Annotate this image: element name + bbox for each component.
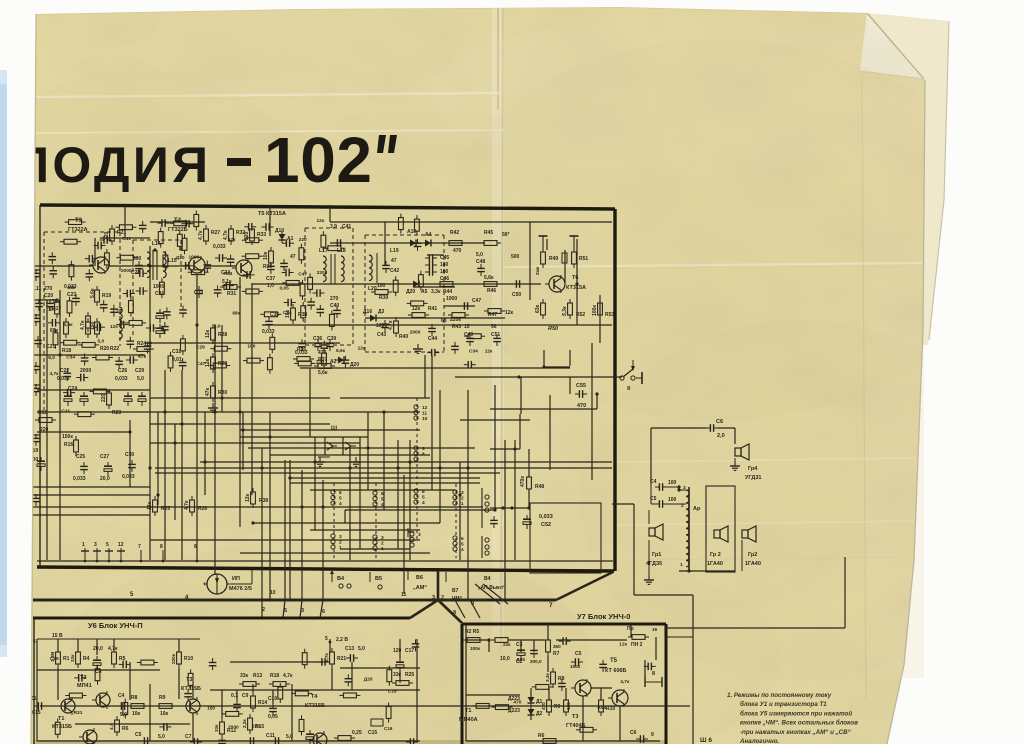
svg-text:С34: С34 — [66, 355, 75, 361]
svg-text:68к: 68к — [68, 285, 76, 291]
svg-text:R8: R8 — [558, 676, 565, 682]
svg-text:Т5 КТ315А: Т5 КТ315А — [258, 211, 286, 217]
svg-text:М476 2/5: М476 2/5 — [229, 586, 252, 592]
svg-text:3: 3 — [94, 542, 97, 548]
svg-text:R22: R22 — [110, 346, 119, 352]
svg-text:4,7к: 4,7к — [620, 679, 630, 685]
svg-text:100к: 100к — [592, 305, 598, 316]
svg-text:1ГА40: 1ГА40 — [745, 561, 761, 567]
svg-text:С36: С36 — [313, 336, 322, 342]
svg-text:Д223: Д223 — [508, 708, 520, 714]
svg-text:390: 390 — [133, 256, 142, 262]
svg-text:R4: R4 — [83, 656, 90, 662]
svg-text:Ш: Ш — [331, 426, 337, 432]
svg-text:63к: 63к — [535, 304, 541, 313]
svg-text:R23: R23 — [112, 410, 121, 416]
svg-text:R30: R30 — [218, 390, 227, 396]
svg-text:„АМ“: „АМ“ — [413, 585, 427, 591]
svg-text:В5: В5 — [375, 576, 382, 582]
svg-text:7: 7 — [549, 602, 553, 609]
svg-text:Т5: Т5 — [610, 658, 618, 664]
svg-text:220: 220 — [299, 237, 307, 243]
svg-text:КТ315А: КТ315А — [566, 285, 586, 291]
svg-text:С41: С41 — [61, 409, 70, 415]
svg-text:5: 5 — [339, 496, 342, 502]
svg-text:5: 5 — [422, 495, 425, 501]
svg-text:0,033: 0,033 — [73, 476, 86, 482]
svg-text:220к: 220к — [171, 653, 176, 664]
svg-text:ЛОДИЯ: ЛОДИЯ — [14, 137, 214, 193]
svg-text:Т3: Т3 — [186, 677, 192, 683]
svg-text:С34: С34 — [469, 349, 478, 355]
svg-text:5,3к: 5,3к — [562, 306, 568, 316]
svg-text:блока У1 и транзистора Т1: блока У1 и транзистора Т1 — [740, 701, 827, 708]
svg-text:4: 4 — [422, 500, 425, 506]
svg-text:1000: 1000 — [570, 664, 581, 669]
svg-text:R25: R25 — [405, 672, 414, 678]
svg-text:+: + — [203, 582, 207, 588]
svg-text:С25: С25 — [76, 454, 85, 460]
svg-text:Т6: Т6 — [572, 275, 578, 281]
svg-text:470: 470 — [453, 248, 462, 254]
svg-text:3: 3 — [418, 532, 421, 538]
svg-text:С40: С40 — [330, 303, 339, 309]
svg-text:R26: R26 — [198, 506, 207, 512]
svg-text:Д20: Д20 — [516, 657, 525, 663]
svg-text:102: 102 — [264, 124, 374, 196]
svg-text:20,0: 20,0 — [93, 646, 103, 652]
svg-text:R45: R45 — [484, 230, 493, 236]
svg-text:УГД31: УГД31 — [745, 475, 761, 481]
svg-text:350: 350 — [553, 644, 561, 649]
svg-text:12: 12 — [422, 405, 428, 411]
svg-text:4ГД35: 4ГД35 — [646, 561, 662, 567]
svg-text:С47: С47 — [472, 298, 481, 304]
svg-text:12к: 12к — [358, 345, 366, 351]
svg-text:R40: R40 — [399, 334, 408, 340]
svg-text:В7: В7 — [452, 588, 459, 594]
svg-text:R38: R38 — [259, 498, 268, 504]
svg-text:R49: R49 — [549, 256, 558, 262]
svg-text:4,7к: 4,7к — [184, 500, 190, 510]
svg-text:3: 3 — [432, 595, 435, 601]
svg-text:6: 6 — [381, 491, 384, 497]
svg-text:ЧМ“: ЧМ“ — [452, 596, 463, 602]
svg-text:С9: С9 — [242, 693, 249, 699]
svg-text:5,0: 5,0 — [137, 376, 144, 382]
svg-text:47к: 47к — [205, 387, 211, 396]
svg-text:С41: С41 — [122, 236, 131, 242]
svg-text:2: 2 — [441, 595, 444, 601]
svg-text:5: 5 — [33, 639, 36, 645]
svg-text:5,6к: 5,6к — [64, 322, 74, 328]
svg-text:7: 7 — [138, 544, 141, 550]
svg-text:С3: С3 — [516, 642, 523, 648]
svg-text:С5: С5 — [135, 732, 142, 738]
svg-text:470к: 470к — [520, 476, 526, 487]
svg-text:Т1: Т1 — [58, 716, 64, 722]
svg-text:9: 9 — [422, 446, 425, 452]
svg-text:L19: L19 — [390, 248, 399, 254]
svg-text:R46: R46 — [487, 288, 496, 294]
svg-text:Д20: Д20 — [364, 677, 373, 683]
svg-text:С16: С16 — [384, 726, 393, 731]
svg-text:12к: 12к — [317, 218, 325, 224]
svg-text:4: 4 — [381, 502, 384, 508]
svg-text:R8: R8 — [131, 695, 138, 701]
svg-text:4,7к: 4,7к — [108, 646, 118, 652]
svg-text:С20: С20 — [44, 293, 53, 299]
svg-text:6: 6 — [322, 609, 325, 615]
svg-text:47к: 47к — [228, 237, 236, 243]
svg-text:1: 1 — [82, 542, 85, 548]
svg-text:180: 180 — [440, 262, 449, 268]
svg-text:6: 6 — [194, 544, 197, 550]
svg-text:2,0: 2,0 — [717, 433, 725, 439]
svg-text:R20: R20 — [100, 346, 109, 352]
svg-text:R53: R53 — [605, 312, 614, 318]
svg-text:R19: R19 — [102, 293, 111, 299]
svg-text:180: 180 — [566, 702, 571, 710]
svg-text:R42: R42 — [450, 230, 459, 236]
svg-text:R9: R9 — [159, 695, 166, 701]
svg-text:56*: 56* — [502, 232, 510, 238]
svg-text:С6: С6 — [630, 730, 637, 736]
svg-text:Д3: Д3 — [378, 309, 385, 315]
svg-text:5,0: 5,0 — [48, 355, 55, 361]
svg-text:12к: 12к — [412, 306, 421, 312]
svg-text:10: 10 — [422, 416, 428, 422]
svg-text:0,033: 0,033 — [115, 376, 128, 382]
svg-text:С43: С43 — [377, 332, 386, 338]
svg-text:С47: С47 — [196, 361, 205, 367]
svg-text:С4: С4 — [118, 693, 125, 699]
svg-text:R52: R52 — [576, 312, 585, 318]
svg-text:4,7к: 4,7к — [283, 673, 293, 679]
svg-text:Аналогично.: Аналогично. — [739, 738, 779, 744]
svg-text:3,3к: 3,3к — [545, 673, 550, 682]
svg-text:9: 9 — [651, 732, 654, 738]
svg-text:10: 10 — [270, 590, 276, 596]
svg-text:4,7к: 4,7к — [198, 230, 204, 240]
svg-text:R39: R39 — [379, 295, 388, 301]
svg-text:2000: 2000 — [228, 725, 239, 731]
svg-text:12к: 12к — [485, 349, 493, 355]
svg-text:R21: R21 — [117, 230, 126, 236]
svg-text:1000: 1000 — [189, 254, 200, 260]
svg-text:1: 1 — [381, 546, 384, 552]
svg-text:С17: С17 — [405, 648, 414, 654]
svg-text:0,033: 0,033 — [122, 474, 135, 480]
svg-text:R33: R33 — [257, 232, 266, 238]
svg-text:С27: С27 — [100, 454, 109, 460]
svg-text:С41: С41 — [342, 224, 351, 230]
svg-text:100: 100 — [668, 480, 677, 486]
svg-text:10к: 10к — [132, 711, 141, 717]
svg-text:R10: R10 — [606, 706, 615, 712]
svg-text:Гр4: Гр4 — [748, 466, 758, 472]
svg-text:2000: 2000 — [121, 268, 132, 274]
svg-text:С7: С7 — [185, 734, 192, 740]
svg-text:R5: R5 — [119, 656, 126, 662]
svg-text:С19: С19 — [388, 689, 397, 695]
svg-text:R50: R50 — [548, 326, 558, 332]
svg-text:0,033: 0,033 — [262, 329, 275, 335]
svg-text:6: 6 — [422, 489, 425, 495]
svg-text:Гр 2: Гр 2 — [710, 552, 721, 558]
svg-text:R1: R1 — [63, 656, 70, 662]
svg-text:11: 11 — [401, 592, 407, 598]
svg-text:С5: С5 — [575, 651, 582, 657]
svg-text:12к: 12к — [619, 642, 627, 648]
svg-text:270: 270 — [44, 286, 53, 292]
svg-text:2000: 2000 — [80, 368, 91, 374]
svg-text:1: 1 — [680, 562, 683, 568]
svg-text:15 В: 15 В — [52, 633, 63, 639]
svg-text:блока У5 измеряются при на: блока У5 измеряются при нажатой — [740, 710, 852, 717]
svg-text:-при нажатых кнопках „АМ“ и: -при нажатых кнопках „АМ“ и „СВ“ — [740, 729, 852, 736]
svg-text:2мк: 2мк — [535, 266, 540, 275]
svg-text:22к: 22к — [503, 642, 511, 647]
svg-text:МП40А: МП40А — [459, 717, 478, 723]
svg-text:Д20: Д20 — [350, 362, 359, 368]
svg-text:R51: R51 — [579, 256, 588, 262]
svg-text:R43: R43 — [452, 324, 461, 330]
svg-text:С39: С39 — [327, 336, 336, 342]
svg-text:2000: 2000 — [410, 330, 421, 336]
svg-text:ПН 2: ПН 2 — [631, 642, 643, 648]
svg-text:5,6к: 5,6к — [336, 348, 346, 354]
svg-text:12к: 12к — [48, 307, 56, 313]
svg-text:200,0: 200,0 — [530, 659, 542, 664]
svg-text:8: 8 — [652, 671, 655, 677]
svg-text:R16: R16 — [64, 442, 73, 448]
svg-text:180: 180 — [440, 269, 449, 275]
svg-text:3,3к: 3,3к — [431, 289, 441, 295]
svg-text:1: 1 — [339, 545, 342, 551]
svg-text:С15: С15 — [368, 730, 377, 736]
svg-text:2: 2 — [461, 496, 464, 502]
svg-text:2: 2 — [681, 503, 684, 509]
svg-text:В4: В4 — [337, 576, 345, 582]
svg-text:10к: 10к — [160, 711, 169, 717]
svg-text:12: 12 — [118, 542, 124, 548]
svg-text:1000: 1000 — [446, 296, 457, 302]
svg-text:Д10: Д10 — [275, 228, 284, 234]
svg-text:б: б — [627, 385, 631, 392]
svg-text:С11: С11 — [266, 733, 275, 739]
svg-text:5,0: 5,0 — [158, 734, 165, 740]
svg-text:20,0: 20,0 — [100, 476, 110, 482]
svg-text:С37: С37 — [266, 276, 275, 282]
svg-text:4: 4 — [461, 547, 464, 553]
svg-text:100: 100 — [247, 344, 255, 350]
svg-text:100: 100 — [668, 497, 677, 503]
svg-text:5: 5 — [325, 636, 328, 642]
svg-text:33к: 33к — [70, 654, 75, 662]
svg-text:R44: R44 — [597, 705, 606, 711]
svg-text:33к: 33к — [240, 673, 249, 679]
svg-text:19: 19 — [652, 627, 658, 632]
svg-text:R18: R18 — [62, 348, 71, 354]
svg-text:5,6к: 5,6к — [90, 288, 96, 298]
svg-text:33к: 33к — [214, 724, 219, 732]
svg-text:R13: R13 — [253, 673, 262, 679]
svg-text:С29: С29 — [196, 344, 205, 350]
svg-text:470: 470 — [541, 702, 546, 710]
svg-text:С29: С29 — [50, 656, 59, 662]
svg-text:R31: R31 — [227, 291, 236, 297]
svg-text:R15: R15 — [38, 410, 47, 416]
svg-text:Гр1: Гр1 — [652, 552, 661, 558]
svg-text:1,0: 1,0 — [267, 283, 274, 289]
svg-text:1000: 1000 — [153, 284, 164, 290]
svg-text:С47: С47 — [298, 272, 307, 278]
svg-text:R7: R7 — [553, 651, 560, 657]
svg-text:С13: С13 — [345, 646, 354, 652]
svg-text:R10: R10 — [184, 656, 193, 662]
svg-text:47: 47 — [391, 258, 397, 264]
svg-text:0,05: 0,05 — [268, 714, 278, 720]
svg-text:Гр2: Гр2 — [748, 552, 757, 558]
svg-text:R31: R31 — [74, 710, 83, 716]
svg-text:КТ 606Б: КТ 606Б — [605, 668, 627, 674]
svg-text:С34: С34 — [283, 310, 292, 316]
svg-text:470: 470 — [513, 700, 521, 706]
svg-text:А4: А4 — [425, 232, 432, 238]
svg-text:Д20: Д20 — [176, 255, 185, 261]
svg-text:100к: 100к — [470, 646, 481, 651]
svg-text:5,0: 5,0 — [358, 646, 365, 652]
svg-text:2: 2 — [381, 541, 384, 547]
svg-text:68к: 68к — [232, 311, 240, 317]
svg-text:R44: R44 — [224, 271, 233, 277]
svg-text:100: 100 — [377, 283, 386, 289]
svg-text:С45: С45 — [440, 255, 449, 261]
svg-text:МП41: МП41 — [77, 683, 92, 689]
svg-text:6: 6 — [339, 490, 342, 496]
svg-text:220: 220 — [252, 723, 260, 729]
svg-text:10к: 10к — [263, 251, 269, 260]
svg-text:4,7к: 4,7к — [388, 320, 394, 330]
svg-text:270: 270 — [330, 296, 339, 302]
svg-text:Т3: Т3 — [572, 714, 578, 720]
svg-text:5,6к: 5,6к — [484, 275, 494, 281]
svg-text:1ГА40: 1ГА40 — [707, 561, 723, 567]
svg-text:С52: С52 — [541, 522, 551, 528]
svg-text:220: 220 — [101, 393, 107, 402]
svg-text:R14: R14 — [258, 700, 267, 706]
svg-text:12к: 12к — [505, 310, 514, 316]
svg-text:11: 11 — [422, 411, 427, 417]
svg-text:3: 3 — [339, 534, 342, 540]
svg-text:С44: С44 — [428, 336, 437, 342]
svg-text:0,033: 0,033 — [539, 514, 553, 520]
svg-text:С42: С42 — [390, 268, 399, 274]
svg-text:500: 500 — [511, 254, 520, 260]
svg-text:С23: С23 — [67, 292, 76, 298]
svg-text:2,2 В: 2,2 В — [336, 637, 348, 643]
svg-text:В6: В6 — [416, 575, 423, 581]
svg-text:Ш 6: Ш 6 — [700, 737, 712, 744]
svg-text:С6: С6 — [716, 419, 723, 425]
svg-text:R44: R44 — [443, 289, 452, 295]
svg-text:6: 6 — [461, 536, 464, 542]
svg-text:150: 150 — [207, 706, 215, 712]
svg-text:R25: R25 — [161, 506, 170, 512]
svg-text:С29: С29 — [135, 368, 144, 374]
svg-text:1: 1 — [461, 501, 464, 507]
svg-text:В4: В4 — [484, 576, 491, 582]
svg-text:220: 220 — [244, 231, 250, 240]
svg-text:А5: А5 — [421, 289, 428, 295]
svg-text:С26: С26 — [118, 368, 127, 374]
svg-text:ИП: ИП — [232, 576, 240, 582]
svg-text:0,033: 0,033 — [213, 244, 226, 250]
svg-text:С51: С51 — [491, 332, 500, 338]
svg-text:Д16: Д16 — [363, 309, 372, 315]
svg-text:5,0: 5,0 — [214, 323, 221, 329]
svg-text:5: 5 — [461, 542, 464, 548]
svg-text:R27: R27 — [211, 230, 220, 236]
svg-text:8: 8 — [160, 544, 163, 550]
svg-text:Д20: Д20 — [406, 289, 415, 295]
svg-text:R18: R18 — [270, 673, 279, 679]
svg-text:R21: R21 — [337, 656, 346, 662]
svg-text:12к: 12к — [205, 329, 211, 338]
svg-text:Д2: Д2 — [536, 711, 543, 717]
svg-text:кнопке „ЧМ“. Всех остальных: кнопке „ЧМ“. Всех остальных блоков — [740, 720, 858, 727]
svg-text:А1: А1 — [287, 236, 294, 242]
svg-text:0,25: 0,25 — [352, 730, 362, 736]
svg-text:С24: С24 — [68, 386, 77, 392]
svg-text:С55: С55 — [576, 383, 586, 389]
svg-text:ГТ322Б: ГТ322Б — [168, 227, 188, 233]
svg-text:0,05: 0,05 — [280, 286, 290, 292]
svg-text:ГТ322А: ГТ322А — [68, 227, 88, 233]
svg-text:1. Режимы по постоянному т: 1. Режимы по постоянному току — [727, 692, 832, 699]
svg-text:5,6к: 5,6к — [318, 370, 328, 376]
svg-text:R41: R41 — [428, 306, 437, 312]
svg-text:47к: 47к — [138, 354, 147, 360]
svg-text:С50: С50 — [512, 292, 521, 298]
svg-text:5: 5 — [381, 497, 384, 503]
svg-text:4,7к: 4,7к — [50, 371, 60, 377]
svg-text:15: 15 — [464, 324, 470, 330]
svg-text:220к: 220к — [317, 270, 328, 276]
svg-text:Пр: Пр — [627, 626, 634, 632]
svg-text:3,9: 3,9 — [330, 224, 337, 230]
svg-text:5,0: 5,0 — [98, 338, 105, 344]
svg-text:R6: R6 — [122, 726, 129, 732]
svg-text:5: 5 — [106, 542, 109, 548]
svg-text:У6 Блок УНЧ-П: У6 Блок УНЧ-П — [88, 621, 143, 630]
svg-text:68: 68 — [441, 318, 447, 324]
svg-text:47: 47 — [290, 254, 296, 260]
svg-text:5,0: 5,0 — [476, 252, 483, 258]
svg-text:18к: 18к — [147, 501, 153, 510]
svg-text:R9: R9 — [554, 704, 561, 710]
svg-text:56: 56 — [491, 324, 497, 330]
svg-text:R28: R28 — [218, 332, 227, 338]
svg-text:150к: 150к — [62, 434, 73, 440]
svg-text:Ар: Ар — [693, 506, 701, 512]
svg-text:R48: R48 — [535, 484, 544, 490]
svg-text:R2 R5: R2 R5 — [465, 629, 479, 635]
svg-text:Т4: Т4 — [311, 694, 318, 700]
svg-text:У7 Блок УНЧ-0: У7 Блок УНЧ-0 — [577, 612, 630, 621]
svg-text:4: 4 — [339, 501, 342, 507]
